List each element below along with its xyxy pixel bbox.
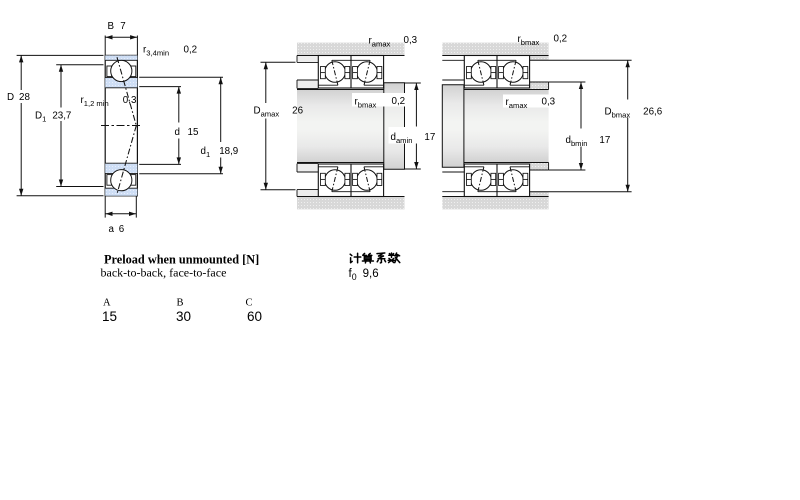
svg-text:0,2: 0,2 xyxy=(554,34,568,45)
svg-text:0,2: 0,2 xyxy=(392,96,406,107)
svg-text:C: C xyxy=(246,298,253,309)
svg-text:d: d xyxy=(175,127,180,138)
svg-text:D: D xyxy=(7,92,14,103)
svg-text:0,2: 0,2 xyxy=(184,45,198,56)
svg-text:6: 6 xyxy=(119,224,125,235)
svg-text:A: A xyxy=(103,298,111,309)
svg-text:15: 15 xyxy=(102,309,117,324)
svg-text:15: 15 xyxy=(188,127,199,138)
svg-text:back-to-back, face-to-face: back-to-back, face-to-face xyxy=(101,266,227,280)
svg-text:B: B xyxy=(177,298,184,309)
svg-text:a: a xyxy=(109,224,115,235)
svg-text:0,3: 0,3 xyxy=(123,95,137,106)
svg-text:0,3: 0,3 xyxy=(404,35,418,46)
svg-text:28: 28 xyxy=(19,92,30,103)
svg-text:Preload when unmounted [N]: Preload when unmounted [N] xyxy=(104,252,259,266)
svg-text:7: 7 xyxy=(120,21,125,32)
svg-text:B: B xyxy=(108,21,115,32)
svg-text:0,3: 0,3 xyxy=(542,97,556,108)
svg-text:30: 30 xyxy=(176,309,191,324)
svg-text:60: 60 xyxy=(247,309,262,324)
